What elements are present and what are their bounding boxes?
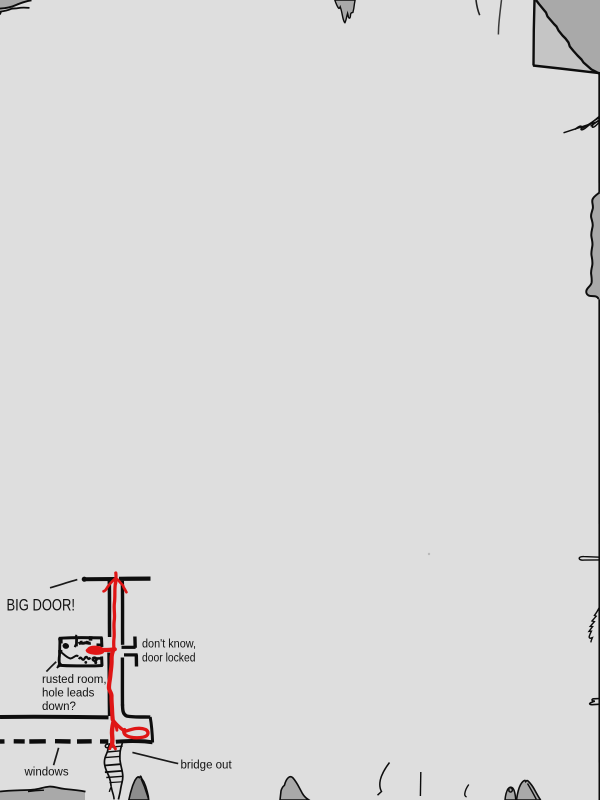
svg-text:bridge out: bridge out <box>181 759 233 771</box>
svg-text:down?: down? <box>42 701 76 713</box>
svg-text:BIG DOOR!: BIG DOOR! <box>7 597 76 615</box>
svg-text:door locked: door locked <box>142 653 196 665</box>
svg-text:windows: windows <box>24 767 69 779</box>
svg-text:rusted room,: rusted room, <box>42 674 107 686</box>
svg-text:hole leads: hole leads <box>42 688 95 700</box>
svg-text:don't know,: don't know, <box>142 639 196 651</box>
